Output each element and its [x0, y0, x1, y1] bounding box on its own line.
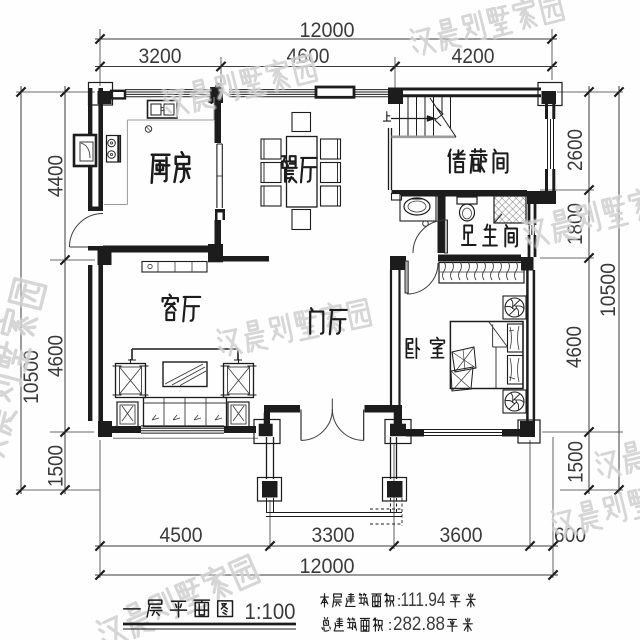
- svg-text:4600: 4600: [45, 335, 68, 377]
- svg-text::: :: [388, 617, 392, 634]
- svg-text:2600: 2600: [564, 129, 587, 171]
- svg-text:4500: 4500: [160, 524, 203, 547]
- svg-text:12000: 12000: [300, 555, 355, 578]
- svg-text:3300: 3300: [312, 524, 355, 547]
- svg-text:1500: 1500: [45, 445, 68, 487]
- svg-text:4600: 4600: [563, 326, 586, 368]
- svg-text:1:100: 1:100: [245, 599, 296, 624]
- svg-text:10500: 10500: [597, 263, 620, 317]
- svg-text:3200: 3200: [139, 45, 182, 68]
- svg-text:12000: 12000: [300, 19, 355, 42]
- svg-text:3600: 3600: [440, 524, 483, 547]
- svg-text:4400: 4400: [45, 155, 68, 197]
- svg-text:282.88: 282.88: [393, 614, 445, 635]
- svg-text:111.94: 111.94: [401, 590, 446, 611]
- svg-text:1500: 1500: [565, 441, 588, 483]
